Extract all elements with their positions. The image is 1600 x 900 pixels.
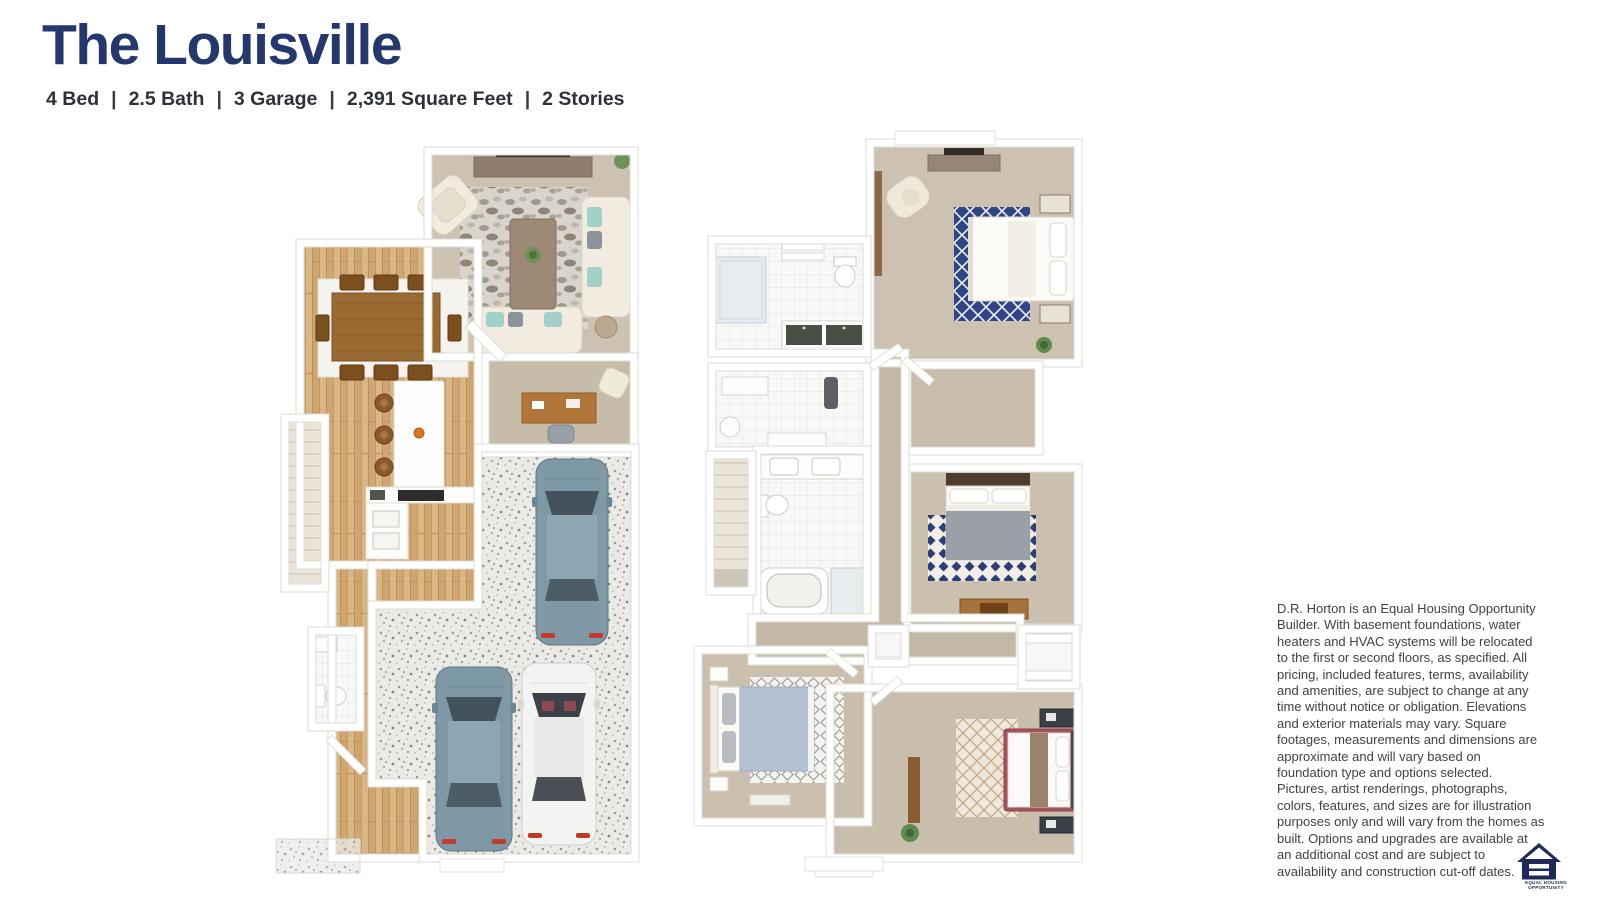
headboard bbox=[946, 473, 1030, 486]
spec-item: 2.5 Bath bbox=[129, 88, 205, 111]
ironing-board bbox=[824, 377, 838, 409]
equal-housing-text-line2: OPPORTUNITY bbox=[1516, 885, 1576, 890]
first-floor-plan bbox=[270, 143, 644, 877]
cooktop bbox=[398, 490, 444, 501]
nightstand bbox=[1040, 305, 1070, 323]
dining-room bbox=[316, 275, 468, 380]
car bbox=[532, 459, 612, 645]
page-title: The Louisville bbox=[42, 12, 401, 78]
toilet bbox=[766, 495, 788, 515]
equal-housing-icon bbox=[1516, 842, 1562, 880]
equal-housing-logo: EQUAL HOUSING OPPORTUNITY bbox=[1516, 842, 1576, 890]
breakfast-floor bbox=[372, 565, 478, 605]
first-floor-plan-drawing bbox=[270, 143, 644, 877]
sofa bbox=[582, 197, 630, 317]
wardrobe bbox=[908, 757, 920, 823]
roof-section bbox=[895, 131, 995, 145]
closet-shelf bbox=[1026, 671, 1072, 680]
spec-item: 3 Garage bbox=[234, 88, 317, 111]
nightstand bbox=[1040, 195, 1070, 213]
coffee-table bbox=[510, 219, 556, 309]
page-root: The Louisville 4 Bed|2.5 Bath|3 Garage|2… bbox=[0, 0, 1600, 900]
specs-bar: 4 Bed|2.5 Bath|3 Garage|2,391 Square Fee… bbox=[46, 88, 625, 111]
spec-divider: | bbox=[111, 88, 116, 111]
entry-stoop bbox=[805, 857, 883, 871]
sink bbox=[812, 458, 840, 475]
shower bbox=[716, 257, 766, 323]
nightstand bbox=[710, 777, 728, 791]
toilet bbox=[835, 265, 855, 287]
hamper bbox=[720, 417, 740, 437]
nightstand bbox=[710, 667, 728, 681]
car bbox=[432, 667, 516, 851]
spec-item: 4 Bed bbox=[46, 88, 99, 111]
spec-divider: | bbox=[329, 88, 334, 111]
spec-item: 2 Stories bbox=[542, 88, 624, 111]
shower bbox=[831, 568, 867, 615]
desk-chair bbox=[548, 425, 574, 443]
bed bbox=[946, 486, 1030, 560]
disclaimer-text: D.R. Horton is an Equal Housing Opportun… bbox=[1277, 601, 1545, 880]
tv bbox=[944, 148, 984, 155]
second-floor-plan bbox=[690, 131, 1090, 881]
bowl bbox=[414, 428, 424, 438]
spec-divider: | bbox=[525, 88, 530, 111]
entry-stoop bbox=[440, 859, 504, 872]
bed bbox=[1004, 729, 1078, 811]
bar-stools bbox=[375, 394, 393, 476]
tv-console bbox=[474, 157, 592, 177]
closet-shelf bbox=[1026, 634, 1072, 643]
bench bbox=[722, 377, 768, 395]
sink bbox=[373, 533, 399, 549]
sink bbox=[373, 511, 399, 527]
nightstand bbox=[1040, 817, 1074, 833]
spec-item: 2,391 Square Feet bbox=[347, 88, 513, 111]
floor-mat bbox=[750, 795, 790, 805]
spec-divider: | bbox=[216, 88, 221, 111]
second-floor-plan-drawing bbox=[690, 131, 1090, 881]
closet-shelf bbox=[782, 253, 824, 260]
nightstand bbox=[1040, 709, 1074, 727]
bed bbox=[968, 217, 1074, 301]
media-console bbox=[928, 155, 1000, 171]
sink bbox=[770, 458, 798, 475]
bed bbox=[710, 685, 814, 773]
car bbox=[518, 663, 600, 845]
side-table bbox=[595, 316, 617, 338]
